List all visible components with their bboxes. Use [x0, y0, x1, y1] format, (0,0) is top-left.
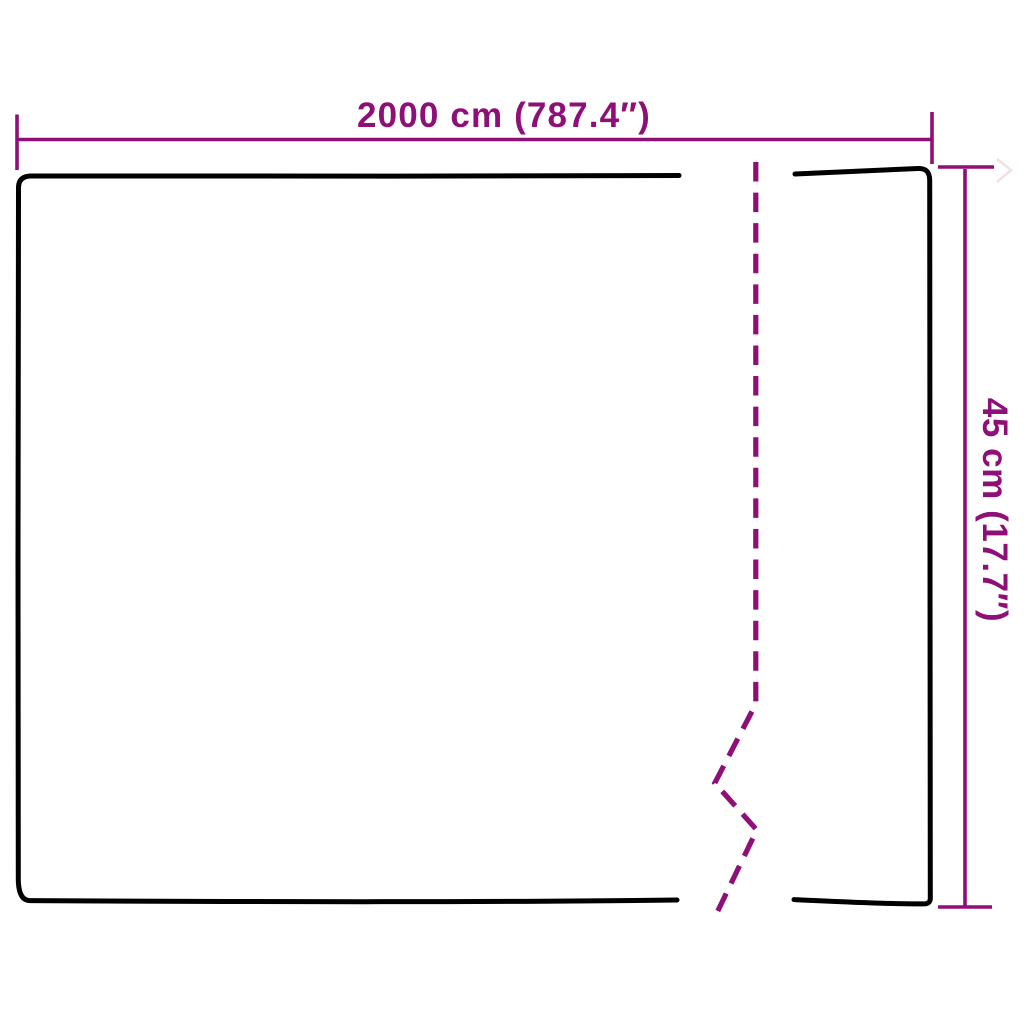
svg-text:2000 cm (787.4″): 2000 cm (787.4″) [357, 96, 651, 135]
svg-text:45 cm (17.7″): 45 cm (17.7″) [975, 398, 1014, 622]
